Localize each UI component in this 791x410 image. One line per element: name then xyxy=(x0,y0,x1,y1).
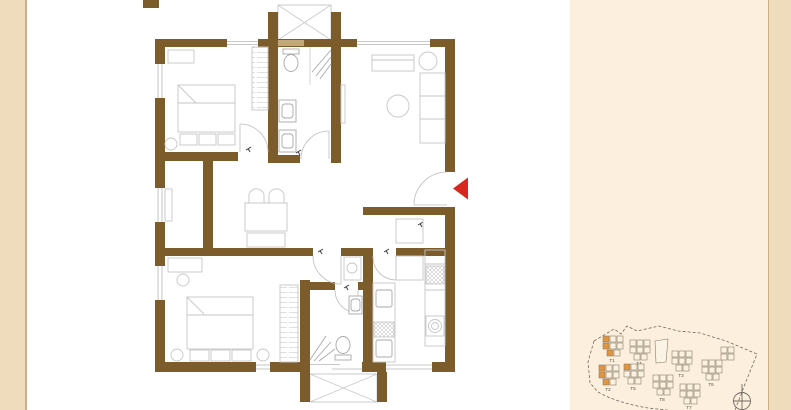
coffee-table xyxy=(387,95,409,117)
sink-icon xyxy=(376,340,392,357)
kitchen-fixtures xyxy=(373,250,445,362)
light-shaft xyxy=(278,5,331,40)
building-cluster-t8: T8 xyxy=(653,375,673,402)
door-bathroom1 xyxy=(301,131,329,159)
dining-bench xyxy=(247,233,285,247)
window xyxy=(155,64,165,98)
bathroom2-fixtures xyxy=(310,296,362,361)
cluster-label: T6 xyxy=(708,382,714,387)
terrace-deck xyxy=(310,374,377,402)
building-cluster-t3: T3 xyxy=(672,351,692,378)
brochure-page: T1 T2 T3 T4 T5 xyxy=(0,0,791,410)
cluster-label: T5 xyxy=(630,386,636,391)
right-margin-strip xyxy=(768,0,791,410)
building-cluster-t4: T4 xyxy=(630,340,650,366)
bedroom1-furniture xyxy=(165,47,268,150)
window xyxy=(155,266,165,300)
tv-console xyxy=(341,85,345,123)
living-room-furniture xyxy=(341,52,445,143)
building-cluster-t5: T5 xyxy=(624,364,644,391)
entrance-arrow-icon xyxy=(453,178,468,200)
toilet-icon xyxy=(283,49,299,72)
building-cluster-t7: T7 xyxy=(680,384,700,410)
washing-machine-icon xyxy=(426,316,444,336)
hall-cabinet xyxy=(396,219,423,243)
sink-icon xyxy=(376,290,392,307)
desk-chair xyxy=(177,274,189,286)
bathroom1-fixtures xyxy=(279,47,331,152)
nightstand xyxy=(171,349,183,361)
kitchen-counter-left xyxy=(373,283,395,362)
window xyxy=(256,362,270,372)
door-corridor xyxy=(313,256,341,284)
dining-table xyxy=(245,203,287,231)
door-bedroom1 xyxy=(240,124,268,152)
window xyxy=(155,188,165,222)
site-map: T1 T2 T3 T4 T5 xyxy=(570,315,768,410)
building-cluster-extra xyxy=(721,347,734,360)
toilet-icon xyxy=(335,337,351,361)
bedroom2-furniture xyxy=(168,258,298,362)
vent-hatch xyxy=(374,322,394,337)
cluster-label: T7 xyxy=(686,405,692,410)
door-kitchen xyxy=(373,256,396,280)
wardrobe xyxy=(252,47,268,110)
console-table xyxy=(372,55,414,71)
cluster-label: T3 xyxy=(678,373,684,378)
double-bed xyxy=(171,297,269,361)
dresser xyxy=(168,50,194,63)
cluster-label: T2 xyxy=(605,387,611,392)
cluster-label: T1 xyxy=(609,358,615,363)
sliding-terrace-door xyxy=(310,362,362,372)
wardrobe xyxy=(280,285,298,362)
compass-north-icon xyxy=(734,384,751,410)
dining-chair xyxy=(249,189,264,203)
cluster-label: T8 xyxy=(659,397,665,402)
clubhouse-building xyxy=(655,339,668,363)
building-cluster-t1: T1 xyxy=(603,336,623,363)
window xyxy=(357,39,430,47)
stove-icon xyxy=(426,266,444,284)
desk xyxy=(168,258,202,272)
sink-icon xyxy=(349,296,362,314)
sofa xyxy=(420,73,445,143)
shower-icon xyxy=(310,47,331,85)
dining-chair xyxy=(269,189,284,203)
entrance-door xyxy=(414,172,447,205)
building-cluster-t6: T6 xyxy=(702,360,722,387)
nightstand xyxy=(257,349,269,361)
floor-plan-drawing xyxy=(0,0,570,410)
building-cluster-t2: T2 xyxy=(599,365,619,392)
radiator xyxy=(165,189,172,221)
window xyxy=(227,39,258,47)
window xyxy=(386,362,432,372)
sink-icon xyxy=(279,100,296,122)
double-bed xyxy=(165,85,235,150)
corridor-closet xyxy=(344,257,361,280)
nightstand xyxy=(165,138,177,150)
sink-icon xyxy=(279,130,296,152)
left-margin-strip xyxy=(0,0,27,410)
plant xyxy=(419,52,437,70)
water-heater xyxy=(347,263,357,273)
kitchen-counter-right xyxy=(425,250,445,346)
shower-icon xyxy=(310,336,335,361)
fridge xyxy=(396,256,423,280)
